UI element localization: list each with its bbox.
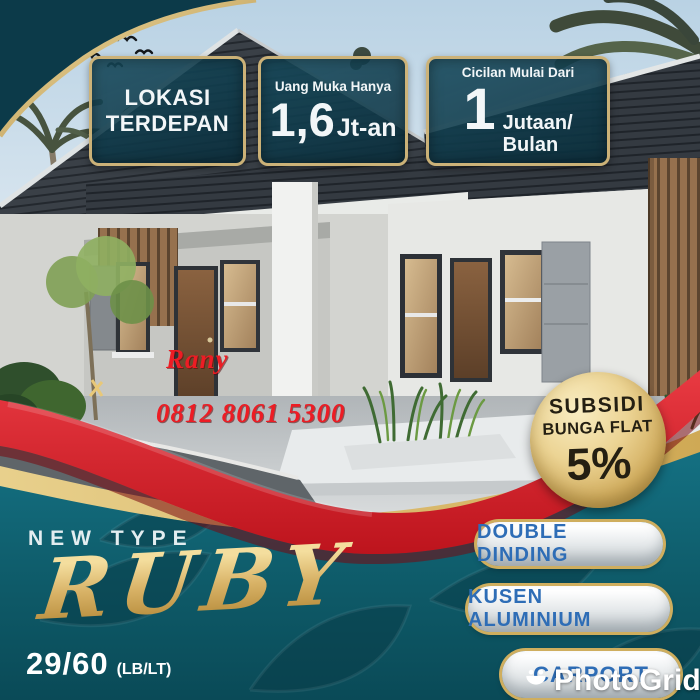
subsidy-line2: BUNGA FLAT	[542, 417, 653, 440]
top-badge-downpayment: Uang Muka Hanya 1,6 Jt-an	[258, 56, 408, 166]
property-ad-poster: LOKASI TERDEPAN Uang Muka Hanya 1,6 Jt-a…	[0, 0, 700, 700]
feature-button-double-dinding[interactable]: DOUBLE DINDING	[477, 522, 663, 566]
badge-line: TERDEPAN	[106, 111, 229, 137]
top-badge-installment: Cicilan Mulai Dari 1 Jutaan/ Bulan	[426, 56, 610, 166]
photogrid-bowl-icon	[523, 664, 549, 698]
downpayment-unit: Jt-an	[337, 114, 397, 143]
type-name: RUBY	[19, 531, 372, 633]
badge-caption: Uang Muka Hanya	[275, 79, 391, 94]
window	[500, 250, 546, 354]
front-door-left-unit	[168, 266, 224, 414]
downpayment-value: 1,6	[269, 96, 334, 143]
subsidy-line1: SUBSIDI	[549, 392, 645, 419]
utility-door	[542, 242, 590, 382]
porch-pillar	[272, 182, 318, 430]
installment-value: 1	[463, 82, 495, 137]
badge-line: LOKASI	[124, 85, 210, 111]
feature-button-kusen-aluminium[interactable]: KUSEN ALUMINIUM	[468, 586, 670, 632]
top-badge-location: LOKASI TERDEPAN	[89, 56, 246, 166]
subsidy-rate: 5%	[566, 440, 633, 487]
window	[220, 260, 260, 352]
window	[400, 254, 442, 378]
agent-phone: 0812 8061 5300	[156, 398, 346, 429]
size-unit-label: (LB/LT)	[117, 661, 172, 679]
photogrid-label: PhotoGrid	[554, 664, 700, 698]
installment-unit-line: Bulan	[503, 135, 573, 157]
size-value: 29/60	[26, 646, 109, 682]
agent-name: Rany	[166, 344, 229, 375]
installment-unit-line: Jutaan/	[503, 113, 573, 135]
front-door-right-unit	[450, 258, 492, 382]
photogrid-watermark: PhotoGrid	[523, 664, 700, 698]
type-size: 29/60 (LB/LT)	[26, 646, 171, 682]
